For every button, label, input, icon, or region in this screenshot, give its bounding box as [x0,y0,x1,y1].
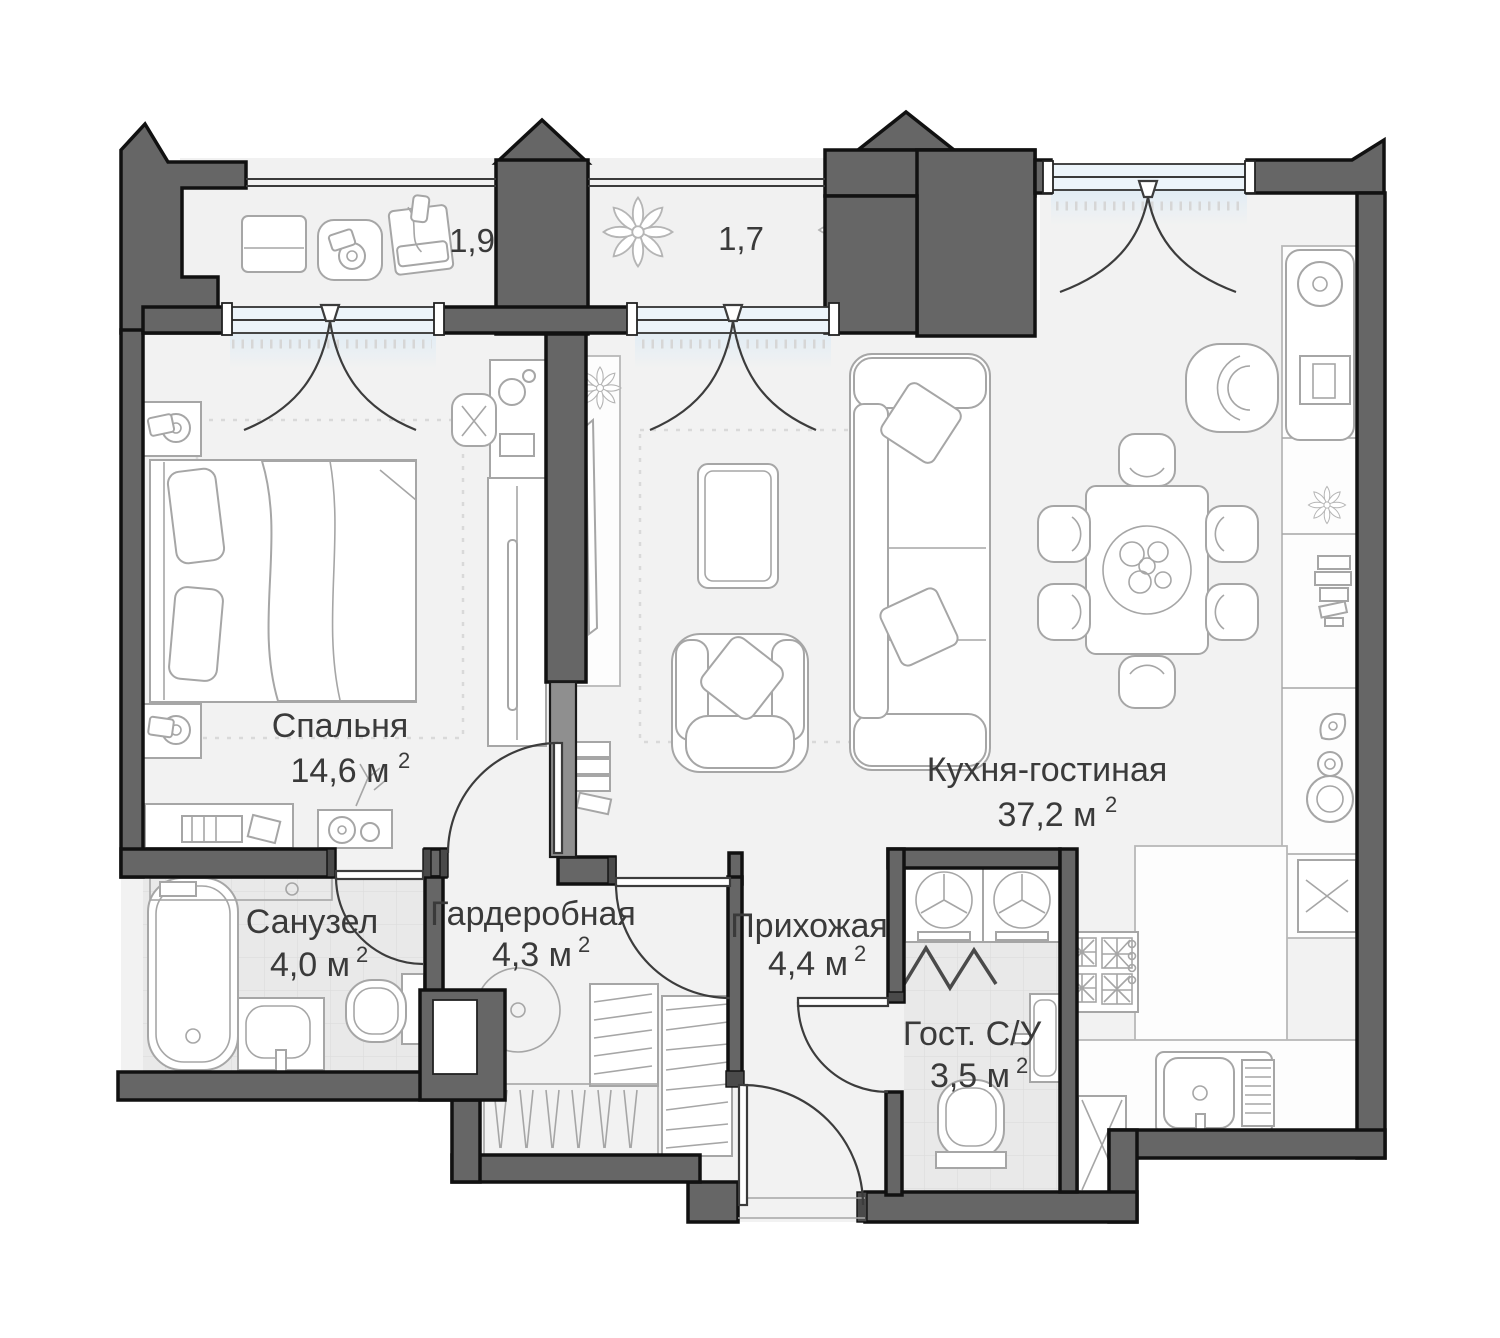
drying-rack [1242,1060,1274,1126]
room-name-wardrobe: Гардеробная [430,895,636,933]
room-area-wardrobe: 4,3 м [492,936,572,974]
balcony1-label: 1,9 [449,222,495,259]
room-area-bedroom: 14,6 м [291,752,390,790]
pillow [167,467,226,564]
desk-chair [1186,344,1278,432]
faucet [276,1050,286,1072]
sup: 2 [1016,1053,1028,1078]
shelves [590,984,658,1086]
room-name-hallway: Прихожая [730,907,888,945]
dining-table [1086,486,1208,654]
sup: 2 [1105,792,1117,817]
dining-chair [1038,584,1090,640]
floor-plan-page: 1,9 1,7 Спальня 14,6 м 2 Кухня-гостиная … [0,0,1500,1338]
coffee-table [698,464,778,588]
kitchen-peninsula [1135,846,1287,1062]
vanity-table [490,360,546,482]
dining-chair [1038,506,1090,562]
balcony2-label: 1,7 [718,220,764,257]
bathtub [148,878,238,1070]
room-name-bathroom: Санузел [246,903,378,941]
plant-icon [604,198,673,267]
dining-chair [1119,656,1175,708]
pillow [168,586,224,682]
sup: 2 [578,932,590,957]
plant-icon [1308,486,1345,523]
sup: 2 [854,941,866,966]
room-area-bathroom: 4,0 м [270,946,350,984]
dining-chair [1206,584,1258,640]
room-name-bedroom: Спальня [272,707,409,745]
room-area-kitchen-living: 37,2 м [998,796,1097,834]
room-area-guest-wc: 3,5 м [930,1057,1010,1095]
room-name-kitchen-living: Кухня-гостиная [927,751,1168,789]
dining-chair [1119,434,1175,486]
room-name-guest-wc: Гост. С/У [903,1015,1042,1053]
shelves [662,996,732,1156]
sup: 2 [356,942,368,967]
sup: 2 [398,748,410,773]
floor-plan-drawing: 1,9 1,7 Спальня 14,6 м 2 Кухня-гостиная … [0,0,1500,1338]
toilet [346,980,406,1042]
dining-chair [1206,506,1258,562]
right-counter [1282,246,1358,938]
room-area-hallway: 4,4 м [768,945,848,983]
